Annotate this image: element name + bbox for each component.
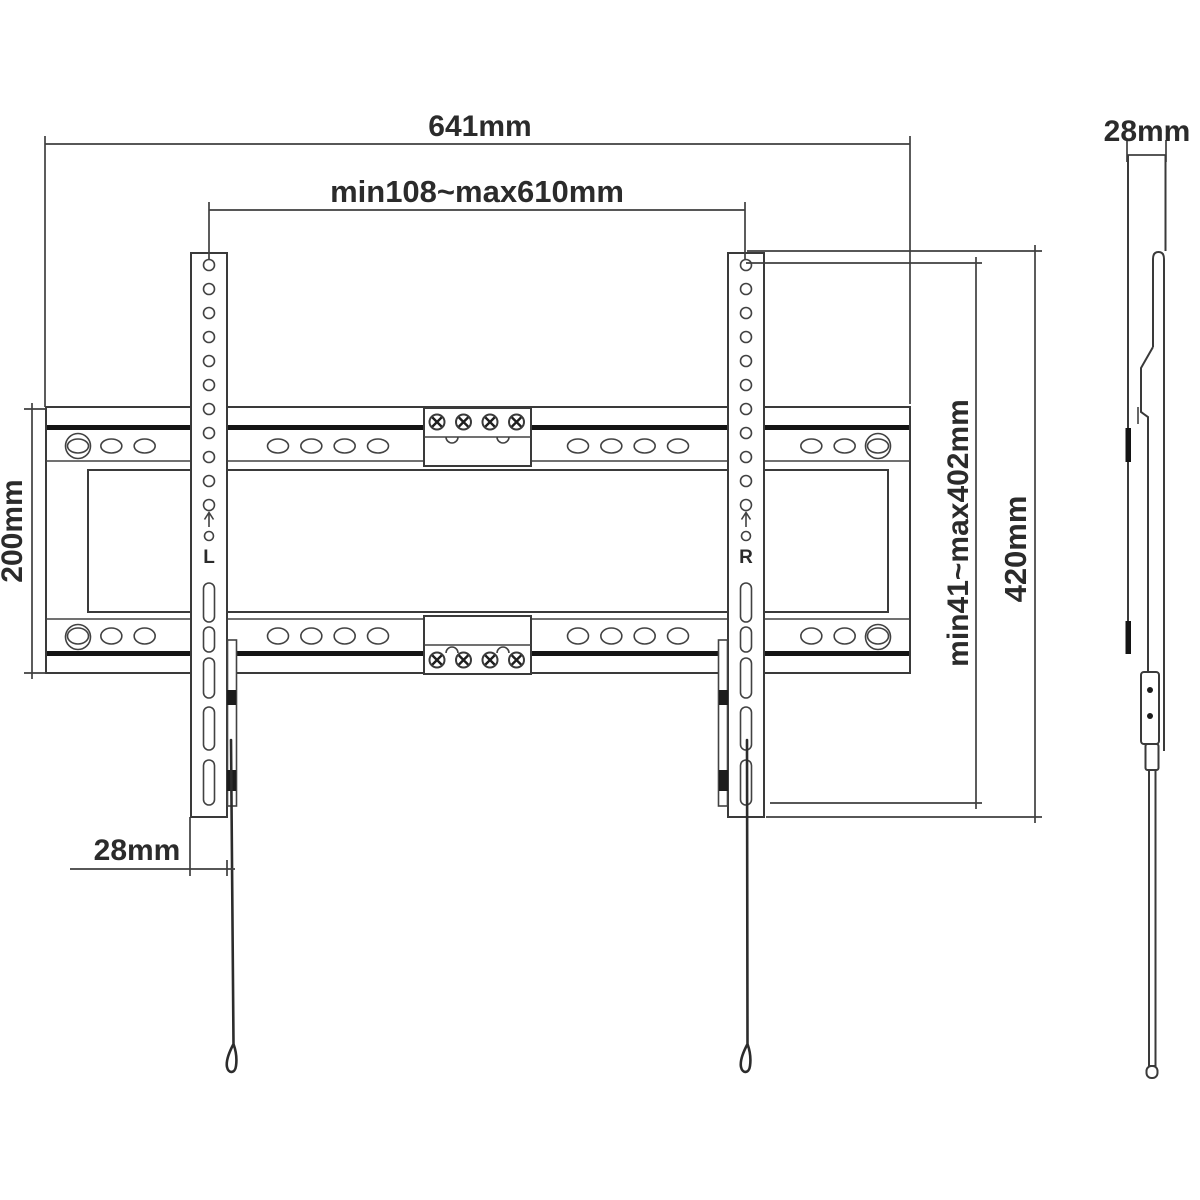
dim-plate-height-label: 200mm [0, 479, 29, 582]
dimension-rail-range: min108~max610mm [209, 174, 745, 259]
vesa-hole [204, 452, 215, 463]
rail-slot [568, 628, 589, 644]
side-latch-screw [1147, 687, 1153, 693]
left-bracket-label: L [203, 547, 215, 568]
vesa-hole [741, 500, 752, 511]
rail-slot [101, 439, 122, 453]
index-hole-icon [205, 532, 214, 541]
dim-vesa-range-label: min41~max402mm [942, 399, 975, 667]
vesa-hole [204, 404, 215, 415]
dim-rail-range-label: min108~max610mm [330, 174, 624, 209]
capsule-slot [204, 627, 215, 652]
side-latch-block [1141, 672, 1159, 744]
dimension-total-width: 641mm [45, 110, 910, 407]
vesa-hole [741, 476, 752, 487]
drawing-page: L R 641mm [0, 0, 1200, 1200]
vesa-hole [741, 332, 752, 343]
vesa-hole [741, 452, 752, 463]
capsule-slot [204, 707, 215, 750]
rail-slot [334, 439, 355, 453]
rail-slot [801, 439, 822, 453]
rail-slot [668, 439, 689, 453]
rail-slot [301, 439, 322, 453]
vesa-hole [204, 308, 215, 319]
rail-slot [68, 628, 89, 644]
vesa-hole [741, 404, 752, 415]
rail-slot [68, 439, 89, 453]
rail-slot [368, 628, 389, 644]
vesa-hole [204, 476, 215, 487]
dim-side-depth-label: 28mm [1104, 115, 1191, 148]
front-view: L R 641mm [0, 110, 1042, 1072]
rail-slot [268, 628, 289, 644]
side-latch-screw [1147, 713, 1153, 719]
rail-slot [801, 628, 822, 644]
rail-slot [834, 439, 855, 453]
vesa-hole [204, 428, 215, 439]
capsule-slot [741, 583, 752, 622]
vesa-hole [204, 332, 215, 343]
side-rail-fold [1126, 621, 1132, 654]
capsule-slot [204, 760, 215, 805]
rail-slot [601, 628, 622, 644]
vesa-hole [741, 308, 752, 319]
vesa-hole [741, 380, 752, 391]
rail-slot [834, 628, 855, 644]
rail-slot [268, 439, 289, 453]
rail-slot [868, 628, 889, 644]
technical-drawing: L R 641mm [0, 0, 1200, 1200]
rail-slot [134, 439, 155, 453]
capsule-slot [204, 583, 215, 622]
vesa-hole [741, 284, 752, 295]
dim-total-width-label: 641mm [428, 110, 531, 143]
dimension-side-depth: 28mm [1104, 115, 1191, 162]
rail-slot [634, 628, 655, 644]
vesa-hole [741, 260, 752, 271]
dimension-plate-height: 200mm [0, 403, 46, 679]
vesa-hole [204, 380, 215, 391]
dim-bracket-depth-label: 28mm [94, 834, 181, 867]
right-latch-hook [719, 770, 728, 791]
vesa-hole [741, 428, 752, 439]
index-hole-icon [742, 532, 751, 541]
side-cord-sleeve [1146, 744, 1159, 770]
side-pull-rod-tip [1147, 1066, 1158, 1078]
right-latch-hook [719, 690, 728, 705]
rail-slot [101, 628, 122, 644]
right-bracket-label: R [739, 547, 753, 568]
vesa-rail-side-step [1141, 347, 1153, 672]
capsule-slot [204, 658, 215, 698]
vesa-hole [741, 356, 752, 367]
rail-slot [368, 439, 389, 453]
side-view: 28mm [1104, 115, 1191, 1078]
rail-slot [568, 439, 589, 453]
rail-slot [334, 628, 355, 644]
vesa-hole [204, 260, 215, 271]
rail-slot [134, 628, 155, 644]
dimension-bracket-depth: 28mm [70, 817, 235, 876]
rail-slot [601, 439, 622, 453]
capsule-slot [741, 627, 752, 652]
rail-slot [668, 628, 689, 644]
rail-slot [868, 439, 889, 453]
rail-slot [301, 628, 322, 644]
side-rail-fold [1126, 428, 1132, 462]
rail-slot [634, 439, 655, 453]
vesa-hole [204, 284, 215, 295]
side-profile [1126, 155, 1166, 1078]
capsule-slot [741, 658, 752, 698]
left-latch-hook [227, 690, 236, 705]
vesa-hole [204, 500, 215, 511]
side-pull-rod [1149, 770, 1156, 1066]
vesa-hole [204, 356, 215, 367]
dim-bracket-height-label: 420mm [998, 496, 1033, 603]
